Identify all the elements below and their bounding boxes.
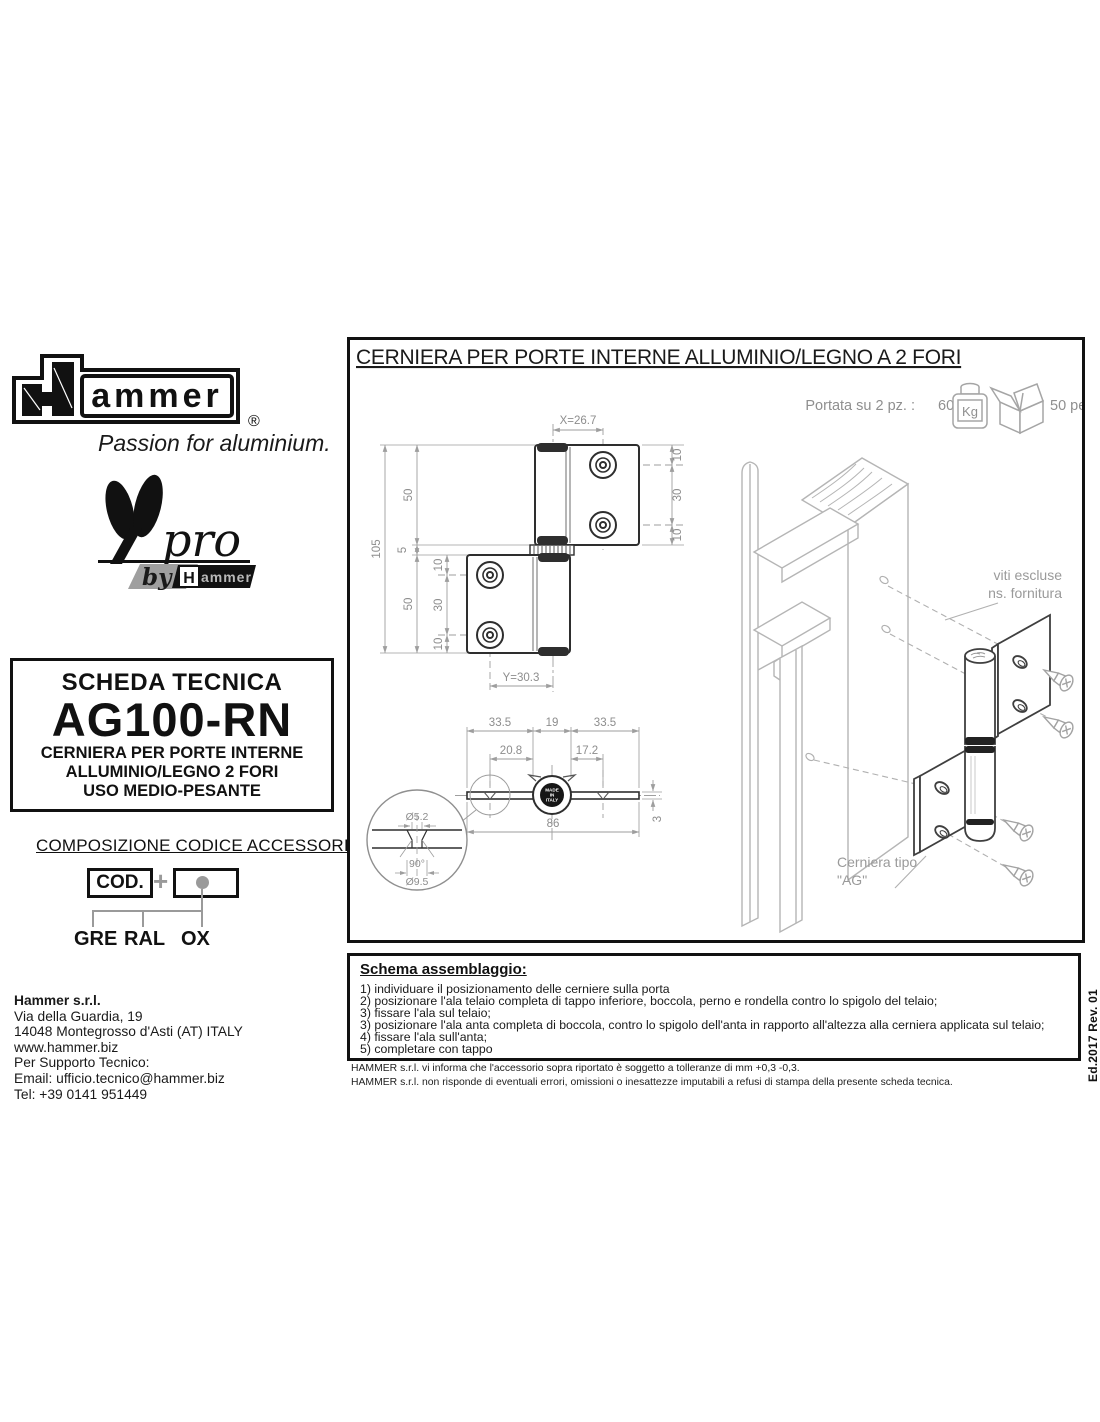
dim-detail-angle: 90° xyxy=(409,858,425,870)
assembly-step: 5) completare con tappo xyxy=(360,1043,1078,1055)
option-ox: OX xyxy=(181,928,210,951)
iso-hinge-lower-plate xyxy=(914,748,970,855)
dim-x: X=26.7 xyxy=(560,415,597,427)
drawing-svg: CERNIERA PER PORTE INTERNE ALLUMINIO/LEG… xyxy=(350,340,1082,940)
brand-tagline: Passion for aluminium. xyxy=(98,430,331,457)
dim-total-height: 105 xyxy=(371,539,383,558)
package-qty: 50 pezzi xyxy=(1050,398,1082,414)
plus-sign: + xyxy=(153,866,168,897)
screws-note-line2: ns. fornitura xyxy=(988,585,1062,601)
product-desc-line1: CERNIERA PER PORTE INTERNE xyxy=(13,744,331,763)
dim-thickness: 3 xyxy=(652,816,664,822)
connector-line xyxy=(201,910,203,927)
apro-hammer-word: ammer xyxy=(201,569,252,585)
cod-box: COD. xyxy=(87,868,153,898)
capacity-unit: Kg xyxy=(962,404,978,419)
option-dot xyxy=(196,876,209,889)
hinge-type-line2: "AG" xyxy=(837,872,867,888)
knuckle-cap xyxy=(537,443,568,452)
panel-title: CERNIERA PER PORTE INTERNE ALLUMINIO/LEG… xyxy=(356,346,961,369)
drawing-panel: CERNIERA PER PORTE INTERNE ALLUMINIO/LEG… xyxy=(347,337,1085,943)
dim-sec-left: 33.5 xyxy=(489,717,511,729)
assembly-title: Schema assemblaggio: xyxy=(360,961,1078,978)
apro-underline xyxy=(98,560,250,563)
hinge-type-line1: Cerniera tipo xyxy=(837,854,917,870)
tech-sheet-box: SCHEDA TECNICA AG100-RN CERNIERA PER POR… xyxy=(10,658,334,812)
dim-hole-right: 17.2 xyxy=(576,745,598,757)
dim-t2: 30 xyxy=(672,489,684,502)
footnotes: HAMMER s.r.l. vi informa che l'accessori… xyxy=(351,1062,953,1089)
apro-by-text: by xyxy=(142,564,173,590)
section-view: 33.5 19 33.5 20.8 17.2 86 3 MADE xyxy=(367,717,664,890)
option-ral: RAL xyxy=(124,928,165,951)
footnote-tolerances: HAMMER s.r.l. vi informa che l'accessori… xyxy=(351,1062,953,1076)
screw xyxy=(1040,710,1076,740)
dim-total-length: 86 xyxy=(547,818,560,830)
company-phone: Tel: +39 0141 951449 xyxy=(14,1087,243,1103)
company-name: Hammer s.r.l. xyxy=(14,993,243,1009)
dim-b2: 30 xyxy=(433,599,445,612)
section-barrel: MADE IN ITALY xyxy=(529,775,575,814)
dim-hole-left: 20.8 xyxy=(500,745,522,757)
connector-line xyxy=(92,910,203,912)
hammer-logo-word: ammer xyxy=(91,377,223,415)
datasheet-page: ammer ® Passion for aluminium. pro by H … xyxy=(0,0,1100,1422)
apro-pro-text: pro xyxy=(162,513,241,567)
dim-y: Y=30.3 xyxy=(503,672,540,684)
dim-sec-center: 19 xyxy=(546,717,559,729)
front-top-leaf xyxy=(535,443,639,545)
knuckle-cap xyxy=(538,553,569,562)
code-composition-title: COMPOSIZIONE CODICE ACCESSORI xyxy=(36,836,349,856)
connector-line xyxy=(201,889,203,910)
screw xyxy=(1000,858,1036,888)
capacity-value: 60 xyxy=(938,398,954,414)
footnote-disclaimer: HAMMER s.r.l. non risponde di eventuali … xyxy=(351,1076,953,1090)
dim-b1: 10 xyxy=(433,559,445,572)
dim-t1: 10 xyxy=(672,449,684,462)
iso-hinge-barrel xyxy=(965,649,995,841)
product-desc-line3: USO MEDIO-PESANTE xyxy=(13,782,331,801)
assembly-box: Schema assemblaggio: 1) individuare il p… xyxy=(347,953,1081,1061)
company-address2: 14048 Montegrosso d'Asti (AT) ITALY xyxy=(14,1024,243,1040)
registered-mark: ® xyxy=(248,413,260,430)
product-desc-line2: ALLUMINIO/LEGNO 2 FORI xyxy=(13,763,331,782)
connector-line xyxy=(92,910,94,927)
knuckle-cap xyxy=(538,647,569,656)
company-website: www.hammer.biz xyxy=(14,1040,243,1056)
detail-view: Ø5.2 90° Ø9.5 xyxy=(367,790,467,890)
dim-b3: 10 xyxy=(433,638,445,651)
tech-sheet-header: SCHEDA TECNICA xyxy=(13,670,331,696)
dim-gap: 5 xyxy=(397,547,409,553)
connector-line xyxy=(142,910,144,927)
company-address-block: Hammer s.r.l. Via della Guardia, 19 1404… xyxy=(14,993,243,1102)
company-email: Email: ufficio.tecnico@hammer.biz xyxy=(14,1071,243,1087)
apro-logo: pro by H ammer xyxy=(82,468,262,590)
stamp-italy: ITALY xyxy=(546,798,559,803)
company-address1: Via della Guardia, 19 xyxy=(14,1009,243,1025)
iso-view: viti escluse ns. fornitura Cerniera tipo… xyxy=(742,458,1076,932)
dim-detail-outer: Ø9.5 xyxy=(406,876,429,888)
panel-header: CERNIERA PER PORTE INTERNE ALLUMINIO/LEG… xyxy=(356,346,1082,433)
capacity-label: Portata su 2 pz. : xyxy=(805,398,915,414)
apro-mini-h: H xyxy=(183,570,195,587)
dim-lower-leaf: 50 xyxy=(403,598,415,611)
weight-icon: Kg xyxy=(953,384,987,429)
front-view: X=26.7 105 50 5 50 10 30 10 10 30 10 Y=3… xyxy=(371,415,686,692)
screw xyxy=(1000,813,1036,843)
front-bottom-leaf xyxy=(467,553,570,656)
product-code: AG100-RN xyxy=(13,696,331,744)
hammer-logo: ammer ® xyxy=(8,348,268,434)
package-box-icon xyxy=(991,384,1043,433)
screws-note-line1: viti escluse xyxy=(994,567,1063,583)
dim-upper-leaf: 50 xyxy=(403,489,415,502)
knuckle-cap xyxy=(537,536,568,545)
iso-hinge-upper-plate xyxy=(992,615,1050,740)
dim-t3: 10 xyxy=(672,529,684,542)
dim-detail-hole: Ø5.2 xyxy=(406,811,429,823)
dim-sec-right: 33.5 xyxy=(594,717,616,729)
hammer-logo-h-bar xyxy=(40,392,54,406)
edition-revision: Ed.2017 Rev. 01 xyxy=(1086,942,1100,1082)
company-support-label: Per Supporto Tecnico: xyxy=(14,1055,243,1071)
option-gre: GRE xyxy=(74,928,117,951)
